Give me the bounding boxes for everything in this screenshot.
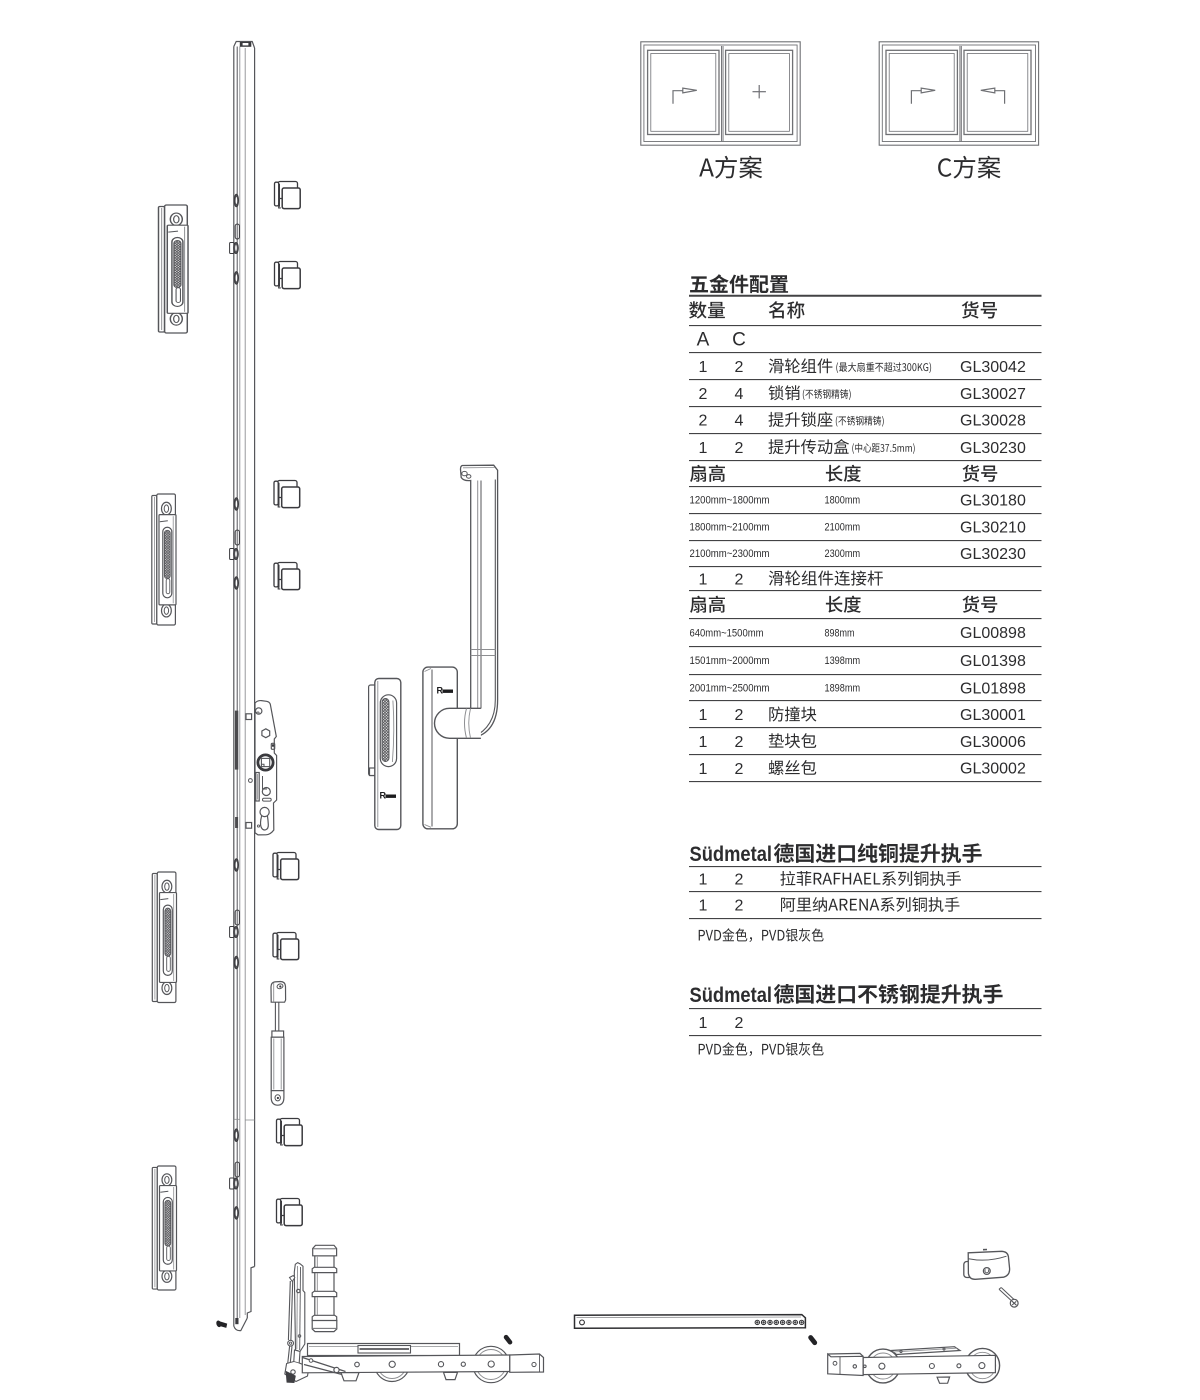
svg-text:1: 1 [699, 734, 708, 751]
svg-text:1501mm~2000mm: 1501mm~2000mm [690, 655, 770, 667]
svg-text:2300mm: 2300mm [825, 548, 861, 560]
svg-text:GL30210: GL30210 [960, 519, 1026, 536]
svg-text:R: R [437, 686, 444, 696]
svg-text:1800mm: 1800mm [825, 495, 861, 507]
svg-text:A: A [697, 330, 710, 351]
svg-text:GL30042: GL30042 [960, 359, 1026, 376]
svg-text:GL30002: GL30002 [960, 761, 1026, 778]
svg-text:1: 1 [699, 898, 708, 915]
svg-text:GL01898: GL01898 [960, 680, 1026, 697]
svg-text:1: 1 [699, 1015, 708, 1032]
svg-text:4: 4 [735, 386, 744, 403]
svg-text:R: R [380, 791, 387, 801]
svg-text:2: 2 [699, 386, 708, 403]
svg-text:2: 2 [735, 359, 744, 376]
svg-text:GL30006: GL30006 [960, 734, 1026, 751]
svg-text:1398mm: 1398mm [825, 655, 861, 667]
svg-text:1: 1 [699, 872, 708, 889]
svg-text:2: 2 [735, 707, 744, 724]
svg-text:1: 1 [699, 707, 708, 724]
svg-text:640mm~1500mm: 640mm~1500mm [690, 627, 764, 639]
svg-text:1: 1 [699, 761, 708, 778]
svg-text:2: 2 [735, 761, 744, 778]
svg-text:2: 2 [735, 872, 744, 889]
svg-text:1: 1 [699, 359, 708, 376]
svg-text:1: 1 [699, 571, 708, 588]
svg-text:Südmetal: Südmetal [690, 843, 773, 866]
svg-text:2100mm: 2100mm [825, 522, 861, 534]
svg-text:GL30230: GL30230 [960, 440, 1026, 457]
svg-text:1898mm: 1898mm [825, 683, 861, 695]
svg-text:1200mm~1800mm: 1200mm~1800mm [690, 495, 770, 507]
svg-text:2: 2 [735, 1015, 744, 1032]
svg-text:GL00898: GL00898 [960, 625, 1026, 642]
svg-text:2: 2 [735, 440, 744, 457]
svg-text:GL01398: GL01398 [960, 653, 1026, 670]
svg-text:4: 4 [735, 413, 744, 430]
svg-text:898mm: 898mm [825, 627, 855, 639]
svg-text:Südmetal: Südmetal [690, 984, 773, 1007]
svg-text:GL30180: GL30180 [960, 492, 1026, 509]
svg-text:2001mm~2500mm: 2001mm~2500mm [690, 683, 770, 695]
svg-text:GL30028: GL30028 [960, 413, 1026, 430]
svg-text:2: 2 [699, 413, 708, 430]
svg-text:2: 2 [735, 898, 744, 915]
svg-text:GL30001: GL30001 [960, 707, 1026, 724]
svg-text:2: 2 [735, 734, 744, 751]
svg-text:2100mm~2300mm: 2100mm~2300mm [690, 548, 770, 560]
svg-text:1800mm~2100mm: 1800mm~2100mm [690, 522, 770, 534]
svg-text:GL30230: GL30230 [960, 546, 1026, 563]
svg-text:C: C [732, 330, 746, 351]
svg-text:2: 2 [735, 571, 744, 588]
svg-text:1: 1 [699, 440, 708, 457]
svg-text:GL30027: GL30027 [960, 386, 1026, 403]
